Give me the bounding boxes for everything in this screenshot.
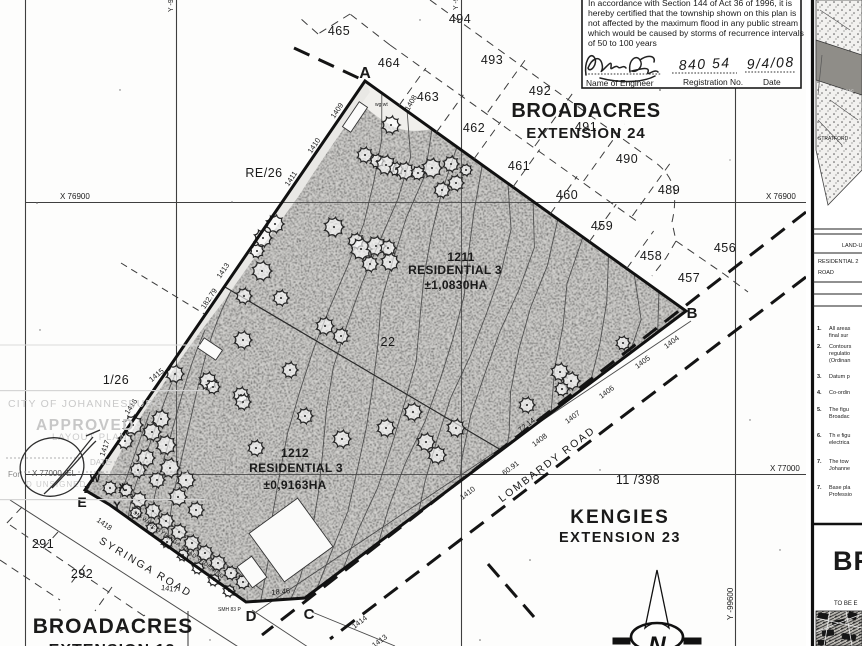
svg-text:The tow: The tow	[829, 459, 849, 465]
svg-text:5.: 5.	[817, 407, 822, 413]
svg-text:7.: 7.	[817, 485, 822, 491]
svg-text:Professio: Professio	[829, 492, 852, 498]
svg-text:458: 458	[640, 249, 662, 263]
svg-text:Johanne: Johanne	[829, 466, 850, 472]
svg-text:Date: Date	[763, 77, 781, 87]
svg-text:C: C	[304, 606, 315, 623]
svg-text:BROADACRES: BROADACRES	[511, 100, 660, 122]
svg-text:KENGIES: KENGIES	[570, 507, 670, 528]
svg-text:X 76900: X 76900	[60, 192, 90, 201]
svg-text:EXTENSION 23: EXTENSION 23	[559, 530, 681, 546]
svg-text:Y -99600: Y -99600	[726, 587, 735, 620]
svg-text:464: 464	[378, 56, 400, 70]
svg-text:3.: 3.	[817, 374, 822, 380]
svg-text:Y: Y	[113, 500, 121, 512]
svg-text:9/4/08: 9/4/08	[746, 54, 795, 72]
svg-text:Name of Engineer: Name of Engineer	[586, 78, 654, 88]
svg-text:SMH 83 P: SMH 83 P	[218, 607, 241, 613]
svg-text:EXTENSION 13: EXTENSION 13	[49, 642, 176, 646]
svg-text:E: E	[77, 494, 86, 510]
svg-text:840 54: 840 54	[678, 54, 731, 73]
svg-text:(Ordinan: (Ordinan	[829, 358, 850, 364]
svg-text:RE/26: RE/26	[245, 166, 282, 180]
svg-text:RESIDENTIAL 3: RESIDENTIAL 3	[408, 263, 502, 277]
svg-text:22: 22	[381, 335, 396, 349]
svg-text:489: 489	[658, 183, 680, 197]
svg-text:B: B	[687, 305, 698, 322]
svg-text:EXTENSION 24: EXTENSION 24	[526, 125, 646, 142]
svg-text:X 77000: X 77000	[770, 464, 800, 473]
svg-text:6.: 6.	[817, 433, 822, 439]
svg-text:BROADACRES: BROADACRES	[33, 615, 194, 638]
svg-text:493: 493	[481, 53, 503, 67]
svg-text:459: 459	[591, 219, 613, 233]
svg-text:456: 456	[714, 241, 736, 255]
svg-text:±0,9163HA: ±0,9163HA	[263, 478, 326, 492]
svg-text:±1,0830HA: ±1,0830HA	[424, 278, 487, 292]
svg-text:18.46: 18.46	[271, 586, 290, 597]
svg-text:BROADAC: BROADAC	[834, 88, 854, 93]
svg-text:460: 460	[556, 188, 578, 202]
svg-text:7.: 7.	[817, 459, 822, 465]
svg-text:final sur: final sur	[829, 333, 848, 339]
svg-text:which would be caused by storm: which would be caused by storms of recur…	[587, 28, 804, 38]
svg-text:457: 457	[678, 271, 700, 285]
svg-text:The figu: The figu	[829, 407, 849, 413]
svg-text:Y -99800: Y -99800	[168, 0, 175, 12]
svg-text:ROAD: ROAD	[818, 270, 834, 276]
svg-text:X 76900: X 76900	[766, 192, 796, 201]
svg-text:STRATFORD: STRATFORD	[818, 136, 849, 142]
svg-text:492: 492	[529, 84, 551, 98]
svg-text:BR: BR	[833, 546, 862, 576]
svg-text:A: A	[359, 65, 371, 82]
svg-text:1212: 1212	[281, 446, 309, 460]
svg-text:292: 292	[71, 567, 93, 581]
svg-text:1211: 1211	[447, 250, 474, 264]
svg-text:regulatio: regulatio	[829, 351, 850, 357]
svg-text:W: W	[90, 473, 101, 485]
svg-text:11 /398: 11 /398	[616, 473, 660, 487]
svg-text:of 50 to 100 years: of 50 to 100 years	[588, 38, 657, 48]
svg-text:D: D	[246, 608, 257, 625]
svg-text:463: 463	[417, 90, 439, 104]
svg-text:291: 291	[32, 537, 54, 551]
svg-text:Base pla: Base pla	[829, 485, 851, 491]
svg-text:1.: 1.	[817, 326, 822, 332]
svg-text:465: 465	[328, 24, 350, 38]
svg-text:RESIDENTIAL 3: RESIDENTIAL 3	[249, 461, 343, 475]
svg-text:Contours: Contours	[829, 344, 852, 350]
svg-text:CITY OF JOHANNESBURG: CITY OF JOHANNESBURG	[8, 398, 164, 410]
svg-text:RESIDENTIAL 2: RESIDENTIAL 2	[818, 259, 858, 265]
svg-text:N: N	[648, 632, 666, 646]
svg-text:wg wt: wg wt	[375, 102, 388, 108]
svg-text:electrica: electrica	[829, 440, 850, 446]
svg-text:Datum p: Datum p	[829, 374, 850, 380]
svg-text:2.: 2.	[817, 344, 822, 350]
svg-text:4.: 4.	[817, 390, 822, 396]
svg-text:All areas: All areas	[829, 326, 851, 332]
svg-text:494: 494	[449, 12, 471, 26]
svg-text:Th e figu: Th e figu	[829, 433, 850, 439]
svg-text:DATE: DATE	[90, 458, 111, 467]
svg-text:TO BE E: TO BE E	[834, 601, 858, 607]
svg-text:Co-ordin: Co-ordin	[829, 390, 850, 396]
svg-text:Broadac: Broadac	[829, 414, 850, 420]
svg-text:1/26: 1/26	[103, 373, 129, 387]
svg-text:Registration No.: Registration No.	[683, 77, 743, 87]
svg-text:LAND-U: LAND-U	[842, 243, 862, 249]
svg-text:In accordance with Section 144: In accordance with Section 144 of Act 36…	[588, 0, 792, 8]
svg-text:For: For	[8, 470, 20, 479]
svg-text:X 77000 /EL: X 77000 /EL	[32, 469, 77, 478]
svg-text:X: X	[118, 482, 126, 494]
svg-text:462: 462	[463, 121, 485, 135]
svg-text:461: 461	[508, 159, 530, 173]
svg-text:490: 490	[616, 152, 638, 166]
svg-text:hereby certified that the town: hereby certified that the township shown…	[588, 8, 796, 18]
svg-text:Y -99700: Y -99700	[453, 0, 460, 10]
svg-text:not affected by the maximum fl: not affected by the maximum flood in any…	[588, 18, 798, 28]
